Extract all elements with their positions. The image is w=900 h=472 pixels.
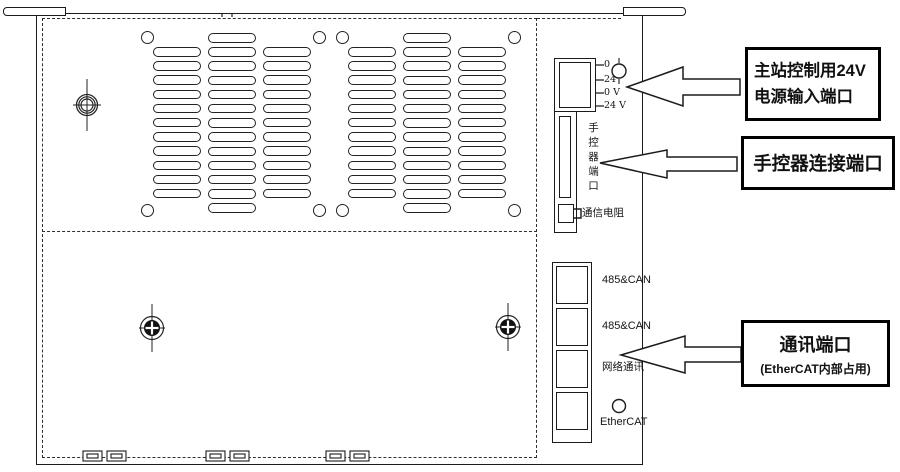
vent-slot — [153, 132, 201, 142]
vent-slot — [403, 33, 451, 43]
vent-slot — [153, 47, 201, 57]
vent-slot — [208, 104, 256, 114]
vent-corner-hole — [508, 31, 521, 44]
vent-slot — [348, 146, 396, 156]
vent-slot — [458, 75, 506, 85]
hand-controller-connector-inner — [559, 116, 571, 198]
power-pin-label: 0 — [604, 60, 610, 70]
hand-controller-port-label: 手控器端口 — [586, 122, 601, 202]
vent-column — [403, 33, 451, 218]
device-diagram: 0 24 0 V 24 V 手控器端口 通信电阻 485&CAN 485&CAN… — [0, 0, 900, 472]
vent-slot — [263, 175, 311, 185]
vent-slot — [403, 118, 451, 128]
vent-slot — [403, 175, 451, 185]
vent-slot — [208, 47, 256, 57]
vent-corner-hole — [141, 31, 154, 44]
vent-corner-hole — [508, 204, 521, 217]
vent-slot — [153, 146, 201, 156]
callout-power-line1: 主站控制用24V — [754, 60, 878, 82]
vent-slot — [348, 161, 396, 171]
vent-slot — [263, 61, 311, 71]
vent-slot — [263, 90, 311, 100]
callout-box-comm: 通讯端口 (EtherCAT内部占用) — [741, 320, 890, 387]
power-pin-label: 24 — [604, 75, 616, 85]
comm-port-label-4: EtherCAT — [600, 416, 647, 428]
vent-slot — [263, 104, 311, 114]
vent-slot — [458, 189, 506, 199]
vent-corner-hole — [313, 31, 326, 44]
vent-slot — [348, 189, 396, 199]
vent-slot — [348, 90, 396, 100]
vent-slot — [153, 75, 201, 85]
vent-slot — [348, 175, 396, 185]
callout-hand-controller-line1: 手控器连接端口 — [753, 150, 883, 176]
comm-resistor-connector — [558, 204, 574, 223]
vent-slot — [458, 146, 506, 156]
vent-slot — [208, 132, 256, 142]
vent-grid-right — [337, 32, 519, 218]
comm-port-socket-2 — [556, 308, 588, 346]
callout-box-power: 主站控制用24V 电源输入端口 — [745, 47, 881, 121]
comm-port-socket-4 — [556, 392, 588, 430]
vent-slot — [263, 118, 311, 128]
comm-resistor-label: 通信电阻 — [582, 207, 624, 219]
vent-slot — [153, 175, 201, 185]
vent-column — [263, 47, 311, 218]
vent-slot — [263, 161, 311, 171]
vent-corner-hole — [336, 204, 349, 217]
power-pin-label: 24 V — [604, 101, 626, 111]
vent-slot — [208, 161, 256, 171]
vent-slot — [208, 175, 256, 185]
vent-slot — [153, 90, 201, 100]
vent-slot — [263, 146, 311, 156]
vent-slot — [208, 189, 256, 199]
vent-slot — [348, 132, 396, 142]
comm-port-label-3: 网络通讯 — [602, 361, 644, 373]
vent-slot — [458, 118, 506, 128]
vent-slot — [348, 61, 396, 71]
vent-slot — [153, 104, 201, 114]
vent-slot — [458, 175, 506, 185]
vent-slot — [348, 104, 396, 114]
vent-slot — [403, 132, 451, 142]
vent-slot — [263, 189, 311, 199]
vent-slot — [403, 147, 451, 157]
vent-slot — [208, 61, 256, 71]
panel-divider — [42, 231, 537, 232]
vent-slot — [348, 118, 396, 128]
vent-slot — [403, 189, 451, 199]
vent-slot — [403, 161, 451, 171]
top-edge-dashed-extension — [537, 18, 621, 19]
vent-slot — [403, 47, 451, 57]
vent-slot — [458, 90, 506, 100]
comm-port-socket-3 — [556, 350, 588, 388]
vent-slot — [458, 161, 506, 171]
vent-corner-hole — [313, 204, 326, 217]
vent-corner-hole — [141, 204, 154, 217]
vent-slot — [263, 75, 311, 85]
vent-slot — [208, 118, 256, 128]
callout-comm-line1: 通讯端口 — [780, 331, 852, 357]
vent-slot — [153, 161, 201, 171]
vent-slot — [458, 104, 506, 114]
mounting-ear-left — [3, 7, 66, 16]
vent-slot — [208, 147, 256, 157]
vent-grid-left — [142, 32, 324, 218]
vent-slot — [403, 76, 451, 86]
vent-slot — [263, 47, 311, 57]
vent-slot — [208, 33, 256, 43]
vent-slot — [403, 203, 451, 213]
vent-slot — [348, 75, 396, 85]
comm-port-label-2: 485&CAN — [602, 320, 651, 332]
vent-slot — [348, 47, 396, 57]
vent-slot — [263, 132, 311, 142]
power-pin-label: 0 V — [604, 88, 620, 98]
vent-slot — [153, 189, 201, 199]
vent-corner-hole — [336, 31, 349, 44]
power-terminal-inner — [559, 62, 591, 108]
vent-column — [153, 47, 201, 218]
vent-column — [208, 33, 256, 218]
vent-slot — [403, 61, 451, 71]
vent-slot — [458, 132, 506, 142]
vent-slot — [208, 203, 256, 213]
vent-slot — [403, 104, 451, 114]
vent-column — [348, 47, 396, 218]
vent-column — [458, 47, 506, 218]
vent-slot — [208, 90, 256, 100]
vent-slot — [403, 90, 451, 100]
vent-slot — [458, 61, 506, 71]
vent-slot — [458, 47, 506, 57]
callout-power-line2: 电源输入端口 — [754, 86, 878, 108]
comm-port-label-1: 485&CAN — [602, 274, 651, 286]
comm-port-socket-1 — [556, 266, 588, 304]
vent-slot — [208, 76, 256, 86]
callout-comm-line2: (EtherCAT内部占用) — [760, 360, 870, 377]
callout-box-hand-controller: 手控器连接端口 — [741, 136, 895, 190]
vent-slot — [153, 61, 201, 71]
vent-slot — [153, 118, 201, 128]
callout-arrow-power — [627, 67, 740, 106]
mounting-ear-right — [623, 7, 686, 16]
